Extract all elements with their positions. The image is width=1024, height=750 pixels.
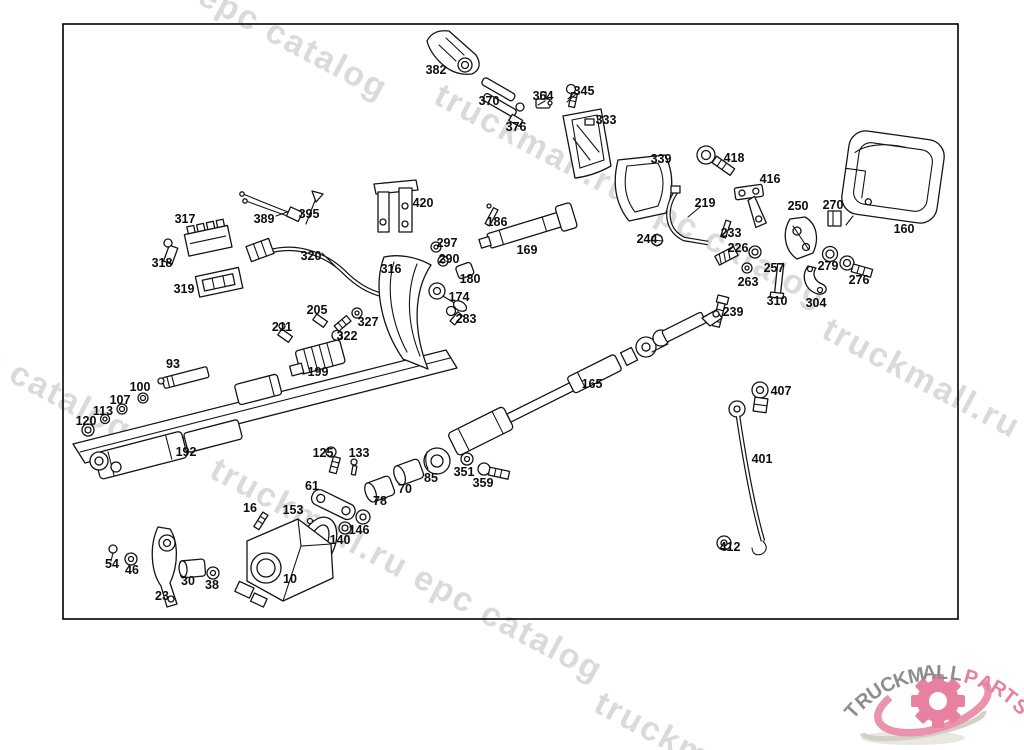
- part-number-270: 270: [823, 198, 844, 212]
- part-number-165: 165: [582, 377, 603, 391]
- part-number-61: 61: [305, 479, 319, 493]
- part-number-186: 186: [487, 215, 508, 229]
- part-number-219: 219: [695, 196, 716, 210]
- part-number-146: 146: [349, 523, 370, 537]
- part-100-washer: [138, 393, 148, 403]
- part-number-412: 412: [720, 540, 741, 554]
- truckmall-parts-logo: TRUCKMALLPARTS: [828, 648, 1024, 750]
- part-number-85: 85: [424, 471, 438, 485]
- part-number-30: 30: [181, 574, 195, 588]
- part-401-rod: [729, 401, 766, 555]
- part-number-304: 304: [806, 296, 827, 310]
- part-number-93: 93: [166, 357, 180, 371]
- part-number-10: 10: [283, 572, 297, 586]
- part-number-327: 327: [358, 315, 379, 329]
- part-number-395: 395: [299, 207, 320, 221]
- part-number-180: 180: [460, 272, 481, 286]
- part-number-297: 297: [437, 236, 458, 250]
- logo-letter-gray: L: [936, 662, 949, 685]
- part-number-351: 351: [454, 465, 475, 479]
- part-number-205: 205: [307, 303, 328, 317]
- part-number-labels: 3823703763643453333394184162192442332262…: [76, 63, 915, 603]
- gear-hole: [929, 692, 947, 710]
- part-number-38: 38: [205, 578, 219, 592]
- part-number-316: 316: [381, 262, 402, 276]
- part-319-connector: [195, 267, 242, 297]
- part-number-345: 345: [574, 84, 595, 98]
- part-number-257: 257: [764, 261, 785, 275]
- part-number-320: 320: [301, 249, 322, 263]
- part-320-harness: [246, 238, 394, 301]
- part-number-389: 389: [254, 212, 275, 226]
- part-number-23: 23: [155, 589, 169, 603]
- part-number-290: 290: [439, 252, 460, 266]
- part-number-407: 407: [771, 384, 792, 398]
- part-number-211: 211: [272, 320, 292, 334]
- part-351-nut: [461, 453, 473, 465]
- part-number-364: 364: [533, 89, 554, 103]
- part-number-263: 263: [738, 275, 759, 289]
- part-number-120: 120: [76, 414, 97, 428]
- part-192-jacket-tube: [73, 350, 457, 480]
- part-257-washer: [749, 246, 761, 258]
- part-number-310: 310: [767, 294, 788, 308]
- part-number-418: 418: [724, 151, 745, 165]
- part-133-pin: [351, 459, 357, 475]
- part-number-125: 125: [313, 446, 334, 460]
- part-number-244: 244: [637, 232, 658, 246]
- part-number-16: 16: [243, 501, 257, 515]
- part-219-lever-rod: [668, 186, 708, 243]
- part-number-401: 401: [752, 452, 773, 466]
- part-416-bracket: [734, 184, 768, 229]
- part-number-233: 233: [721, 226, 742, 240]
- part-160-housing: [840, 129, 947, 226]
- part-number-46: 46: [125, 563, 139, 577]
- part-number-376: 376: [506, 120, 527, 134]
- part-number-100: 100: [130, 380, 151, 394]
- part-number-420: 420: [413, 196, 434, 210]
- part-number-317: 317: [175, 212, 196, 226]
- part-number-78: 78: [373, 494, 387, 508]
- diagram-artwork: [73, 31, 946, 607]
- part-number-153: 153: [283, 503, 304, 517]
- part-number-226: 226: [728, 241, 749, 255]
- part-number-416: 416: [760, 172, 781, 186]
- part-number-318: 318: [152, 256, 173, 270]
- part-number-319: 319: [174, 282, 195, 296]
- part-263-washer: [742, 263, 752, 273]
- part-250-bracket: [785, 217, 816, 259]
- part-number-283: 283: [456, 312, 477, 326]
- part-407-ball-stud: [752, 382, 768, 413]
- part-number-160: 160: [894, 222, 915, 236]
- exploded-view-diagram: 3823703763643453333394184162192442332262…: [0, 0, 1024, 750]
- part-number-199: 199: [308, 365, 329, 379]
- part-number-333: 333: [596, 113, 617, 127]
- part-number-239: 239: [723, 305, 744, 319]
- part-number-169: 169: [517, 243, 538, 257]
- part-number-140: 140: [330, 533, 351, 547]
- part-number-370: 370: [479, 94, 500, 108]
- part-number-70: 70: [398, 482, 412, 496]
- part-number-279: 279: [818, 259, 839, 273]
- part-number-192: 192: [176, 445, 197, 459]
- part-420-bracket: [374, 180, 418, 232]
- part-number-322: 322: [337, 329, 358, 343]
- part-number-359: 359: [473, 476, 494, 490]
- part-number-174: 174: [449, 290, 470, 304]
- parts-catalog-page: epc catalogtruckmall.ru epc catalogepc c…: [0, 0, 1024, 750]
- part-number-250: 250: [788, 199, 809, 213]
- part-number-133: 133: [349, 446, 370, 460]
- part-number-276: 276: [849, 273, 870, 287]
- part-number-382: 382: [426, 63, 447, 77]
- part-number-54: 54: [105, 557, 119, 571]
- part-270-clip: [828, 211, 841, 226]
- part-146-ring: [356, 510, 370, 524]
- part-number-339: 339: [651, 152, 672, 166]
